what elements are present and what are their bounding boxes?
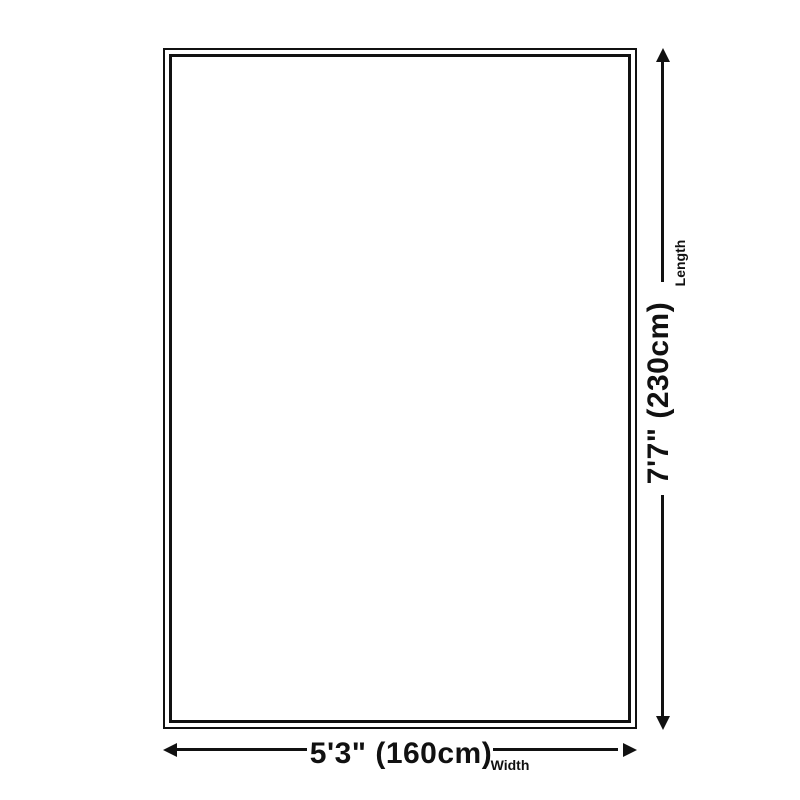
rug-dimension-diagram: 7'7" (230cm) Length 5'3" (160cm) Width (0, 0, 800, 800)
rug-inner-border (169, 54, 631, 723)
width-arrow-line-left (176, 748, 307, 751)
arrow-right-icon (623, 743, 637, 757)
width-value: 5'3" (160cm) (310, 739, 492, 769)
width-axis-label: Width (491, 758, 530, 772)
length-arrow-line-lower (661, 495, 664, 719)
length-value: 7'7" (230cm) (644, 302, 674, 484)
length-axis-label: Length (673, 240, 687, 287)
width-arrow-line-right (493, 748, 618, 751)
arrow-left-icon (163, 743, 177, 757)
arrow-down-icon (656, 716, 670, 730)
length-arrow-line-upper (661, 59, 664, 282)
rug-outline (163, 48, 637, 729)
